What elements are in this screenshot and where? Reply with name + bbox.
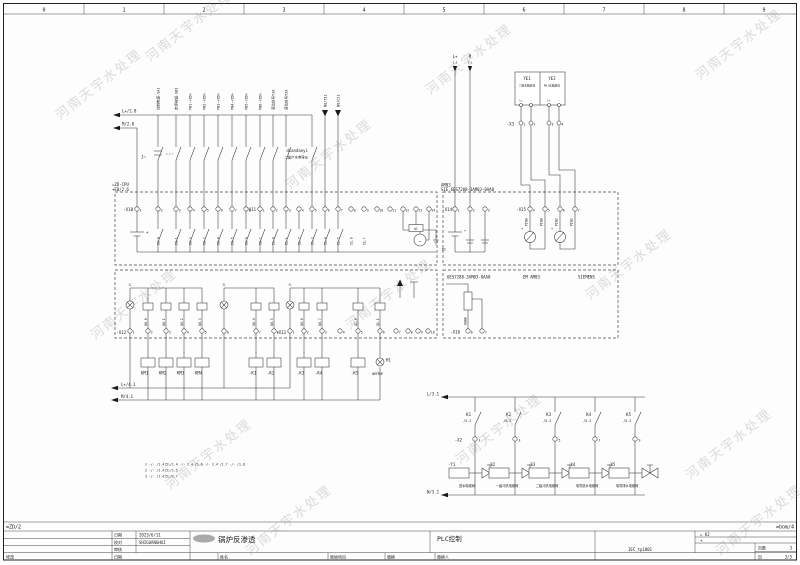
ruler-number-4: 4 xyxy=(362,8,365,14)
coil-rect-2 xyxy=(179,303,189,310)
coil-rect-7 xyxy=(317,303,327,310)
x13-num-7: 8 xyxy=(411,330,413,334)
aq-wire-0: AQW0 xyxy=(464,317,468,325)
piw-wire-3: PIW2 xyxy=(570,218,574,226)
k-contact-label: K3 xyxy=(546,412,551,417)
x13-num-5: 6 xyxy=(383,330,385,334)
terminal-1 xyxy=(480,329,484,333)
terminal-5 xyxy=(222,329,226,333)
x14-num-0: 1 xyxy=(458,208,460,212)
audit-label: 审核 xyxy=(114,546,122,552)
x13-num-4: 5 xyxy=(361,330,363,334)
x10-wire-labels: I0.0I0.1I0.2I0.3I0.4I0.5I0.6 xyxy=(157,237,249,245)
ye-term-0: L+ xyxy=(519,99,523,103)
x16-terminals xyxy=(466,329,484,333)
terminal-2 xyxy=(164,329,168,333)
terminal-0 xyxy=(288,329,292,333)
x11-num-4: 5 xyxy=(315,208,317,212)
watermark-11: 河南天宇水处理 xyxy=(713,482,800,559)
terminal-0 xyxy=(528,207,532,211)
x14-num-2: 3 xyxy=(488,208,490,212)
x11-num-10: 11 xyxy=(392,208,396,212)
ac-label: AC xyxy=(414,227,418,231)
x2-num: 9 xyxy=(639,439,641,443)
x10-num-6: 7 xyxy=(235,208,237,212)
terminal-3 xyxy=(573,207,577,211)
x12-wire-1: Q0.0 xyxy=(144,318,148,326)
x10-num-3: 4 xyxy=(193,208,195,212)
group-label-1: 2L xyxy=(222,283,226,287)
x10-num-4: 5 xyxy=(207,208,209,212)
x13-wire-5: Q1.1 xyxy=(376,318,380,326)
input-labels: 控制电源-SA1启停按钮-SB1PB1-<ZD>PB2-<ZD>PB3-<ZD>… xyxy=(156,88,289,110)
input-label-3: PB2-<ZD> xyxy=(203,93,207,110)
terminal-3 xyxy=(188,207,192,211)
aq-wire-label: AQW0 xyxy=(464,317,468,325)
date-value: 2023/6/11 xyxy=(139,533,161,538)
x10-num-7: 8 xyxy=(249,208,251,212)
valve-branch-5: K5 /5.3 9 -Y5 电导排水电磁阀 xyxy=(608,397,658,495)
drawing-subtitle: PLC控制 xyxy=(437,534,462,543)
x11-num-1: 2 xyxy=(276,208,278,212)
x13-numbers: 12345678910 xyxy=(293,330,435,334)
x13-num-8: 9 xyxy=(421,330,423,334)
coil-rect-3 xyxy=(197,303,207,310)
h1-label: H1 xyxy=(386,358,391,363)
valve-bus-l: L/3.1 xyxy=(427,392,440,397)
valve-desc: 二级冲洗电磁阀 xyxy=(536,483,558,488)
conductivity-note: diandaoyi 二级产水电导仪 xyxy=(284,148,308,160)
input-label-0: 控制电源-SA1 xyxy=(156,88,161,110)
coil-rects xyxy=(141,358,365,367)
ref-left: =ZD/2 xyxy=(6,525,21,531)
date-label: 日期 xyxy=(114,532,122,538)
schematic-page: 0123456789 河南天宇水处理河南天宇水处理河南天宇水处理河南天宇水处理河… xyxy=(0,0,800,565)
valve-branch-3: K3 /5.3 5 -Y3 二级冲洗电磁阀 xyxy=(528,397,578,495)
sensor-l-ref: 3.1 xyxy=(452,61,457,65)
coil-label-8: -K5 xyxy=(351,371,359,376)
k-contact-ref: /5.3 xyxy=(543,419,551,423)
key-switch-label: J~ xyxy=(141,155,146,160)
x12-wire-2: Q0.1 xyxy=(162,318,166,326)
x13-terminals xyxy=(288,329,430,333)
piw-wire-1: PIW0 xyxy=(540,218,544,226)
valve-tag: -Y1 xyxy=(448,462,456,467)
legend-line-2: 3 -/- /1.4(5)/1.7 xyxy=(145,475,178,479)
coil-rect-4 xyxy=(251,303,261,310)
coil-label-5: -K2 xyxy=(267,371,275,376)
valve-branch-4: K4 /5.3 7 -Y4 电导进水电磁阀 xyxy=(568,397,618,495)
terminal-1 xyxy=(529,121,533,125)
check-label: 校对 xyxy=(114,539,122,545)
valve-tag: -Y2 xyxy=(488,462,496,467)
x11-num-12: 13 xyxy=(418,208,422,212)
x10-num-5: 6 xyxy=(221,208,223,212)
note-diandaoyi-cn: 二级产水电导仪 xyxy=(284,155,308,160)
mid-feed-buses: L+/4.1 M/4.1 xyxy=(111,382,380,402)
x12-num-5: 6 xyxy=(227,330,229,334)
x12-num-6: 7 xyxy=(259,330,261,334)
coil-rect-8 xyxy=(353,303,363,310)
coil-label-0: KM1 xyxy=(141,371,149,376)
terminal-1 xyxy=(302,329,306,333)
input-label-7: PB6-<ZD> xyxy=(259,93,263,110)
mid-bus-l-label: L+/4.1 xyxy=(121,382,136,387)
terminal-7 xyxy=(406,329,410,333)
k-contact-label: K4 xyxy=(586,412,591,417)
cpu-input-module: =ZD-CPU +EB/2.6 -X10 -X11 xyxy=(112,182,437,265)
mid-bus-m-label: M/4.1 xyxy=(121,394,134,399)
rev-label: 修改 xyxy=(6,553,14,559)
signal-arrow-labels: NO/T11NO/C21 xyxy=(324,94,341,107)
terminal-2 xyxy=(548,104,551,107)
terminal-2 xyxy=(284,207,288,211)
x12-wire-4: Q0.3 xyxy=(198,318,202,326)
x13-num-3: 4 xyxy=(343,330,345,334)
x12-wire-7: Q0.5 xyxy=(270,318,274,326)
ruler-number-0: 0 xyxy=(42,8,45,14)
x13-wire-4: Q1.0 xyxy=(354,318,358,326)
x2-num: 7 xyxy=(599,439,601,443)
terminal-2 xyxy=(174,207,178,211)
input-contacts xyxy=(158,115,317,207)
terminal-2 xyxy=(320,329,324,333)
output-relay-rects xyxy=(143,303,385,310)
h1-desc: 运行指示 xyxy=(372,372,383,376)
input-label-5: PB4-<ZD> xyxy=(231,93,235,110)
terminal-4 xyxy=(356,329,360,333)
coil-rect-0 xyxy=(143,303,153,310)
terminal-5 xyxy=(216,207,220,211)
x11-num-3: 4 xyxy=(302,208,304,212)
drawing-title: 锅炉反渗透 xyxy=(218,534,256,544)
am03-dc: DC xyxy=(442,248,446,252)
ye1-desc: 二级水箱液位 xyxy=(519,84,536,88)
coil-rect-9 xyxy=(375,303,385,310)
group-label-0: 1L xyxy=(128,283,132,287)
check-value: SHIGUANGHUI xyxy=(139,540,166,545)
x3-num-3: 4 xyxy=(562,122,564,126)
repl-label: 替换 xyxy=(387,553,395,559)
terminal-4 xyxy=(310,207,314,211)
terminal-8 xyxy=(362,207,366,211)
x16-numbers: 67 xyxy=(471,330,487,334)
coil-label-1: KM2 xyxy=(159,371,167,376)
em-brand: SIEMENS xyxy=(578,275,595,280)
x12-wire-6: Q0.4 xyxy=(252,318,256,326)
ruler-ticks xyxy=(84,4,724,14)
x12-wire-labels: Q0.0Q0.1Q0.2Q0.3Q0.4Q0.5 xyxy=(144,318,274,326)
key-switch-symbol xyxy=(154,151,173,155)
coil-rect-0 xyxy=(141,358,155,367)
x15-label: -X15 xyxy=(516,207,526,212)
ye-term-2: L+ xyxy=(547,99,551,103)
title-block: =ZD/2 =bom/4 日期 2023/6/11 校对 SHIGUANGHUI… xyxy=(4,525,796,561)
x11-num-13: 14 xyxy=(431,208,435,212)
coil-rect-6 xyxy=(299,303,309,310)
coil-rect-3 xyxy=(195,358,209,367)
arrow-label-1: NO/C21 xyxy=(337,94,341,107)
x14-label: -X14 xyxy=(442,207,452,212)
coil-rect-4 xyxy=(249,358,263,367)
valve-tag: -Y4 xyxy=(568,462,576,467)
bus-label-lplus: L+/2.8 xyxy=(122,109,137,114)
terminal-1 xyxy=(146,329,150,333)
coil-rect-5 xyxy=(269,303,279,310)
x15-num-2: 6 xyxy=(563,208,565,212)
terminal-6 xyxy=(230,207,234,211)
terminal-2 xyxy=(558,207,562,211)
x13-num-2: 3 xyxy=(325,330,327,334)
valve-bus-n: N/3.1 xyxy=(427,490,440,495)
k-contact-label: K1 xyxy=(466,412,471,417)
x12-wire-3: Q0.2 xyxy=(180,318,184,326)
ruler-number-5: 5 xyxy=(442,8,445,14)
x10-terminals xyxy=(135,207,248,211)
x2-num: 1 xyxy=(479,439,481,443)
x16-num-1: 7 xyxy=(485,330,487,334)
x15-terminals xyxy=(528,207,577,211)
piw-wire-0: PIW0 xyxy=(525,218,529,226)
ye2-label: YE2 xyxy=(548,76,556,81)
x16-label: -X16 xyxy=(450,330,460,335)
coil-label-7: -K4 xyxy=(315,371,323,376)
am03-plus: + xyxy=(464,229,466,233)
em-order: 6ES7288-3AM03-0AA0 xyxy=(447,275,491,280)
x10-num-0: 1 xyxy=(140,208,142,212)
x13-num-6: 7 xyxy=(399,330,401,334)
input-label-1: 启停按钮-SB1 xyxy=(174,88,179,110)
k-contact-ref: /5.2 xyxy=(463,419,471,423)
revdate-label: 日期 xyxy=(114,553,122,559)
terminal-1 xyxy=(271,207,275,211)
terminal-2 xyxy=(547,121,551,125)
terminal-5 xyxy=(378,329,382,333)
h1-lamp xyxy=(376,358,384,366)
terminal-0 xyxy=(135,207,139,211)
terminal-0 xyxy=(258,207,262,211)
x2-label: -X2 xyxy=(455,438,463,443)
valve-desc: 一级冲洗电磁阀 xyxy=(496,483,518,488)
valve-tag: -Y3 xyxy=(528,462,536,467)
x10-num-2: 3 xyxy=(179,208,181,212)
x3-num-1: 2 xyxy=(534,122,536,126)
x3-num-2: 3 xyxy=(552,122,554,126)
ruler-number-3: 3 xyxy=(282,8,285,14)
group-label-2: 3L xyxy=(288,283,292,287)
x15-num-1: 5 xyxy=(548,208,550,212)
orig-label: 原始项目 xyxy=(330,553,346,559)
k-contact-ref: /5.3 xyxy=(623,419,631,423)
terminal-0 xyxy=(128,329,132,333)
ye-x3-wires xyxy=(521,107,559,122)
coil-label-4: -K1 xyxy=(249,371,257,376)
watermark-3: 河南天宇水处理 xyxy=(693,6,786,83)
x2-num: 5 xyxy=(559,439,561,443)
ref-right: =bom/4 xyxy=(776,525,794,531)
x13-num-0: 1 xyxy=(293,330,295,334)
pages-value: 3 xyxy=(790,546,793,551)
ruler-number-6: 6 xyxy=(522,8,525,14)
coil-label-3: KM4 xyxy=(195,371,203,376)
output-relay-drops1 xyxy=(148,288,380,303)
coil-rect-2 xyxy=(177,358,191,367)
watermark-7: 河南天宇水处理 xyxy=(163,416,256,493)
watermark-8: 河南天宇水处理 xyxy=(453,391,546,468)
terminal-3 xyxy=(338,329,342,333)
terminal-3 xyxy=(558,104,561,107)
location-2: + xyxy=(700,538,703,543)
x2-num: 3 xyxy=(519,439,521,443)
ye2-desc: RO1水箱液位 xyxy=(544,84,560,88)
coil-drops-top xyxy=(148,333,380,358)
terminal-1 xyxy=(543,207,547,211)
ruler-number-7: 7 xyxy=(602,8,605,14)
x3-label: -X3 xyxy=(507,121,515,126)
x11-num-6: 7 xyxy=(341,208,343,212)
x13-wire-1: Q0.6 xyxy=(300,318,304,326)
ruler-number-8: 8 xyxy=(682,8,685,14)
x12-num-0: 1 xyxy=(133,330,135,334)
terminal-1 xyxy=(156,207,160,211)
x12-num-3: 4 xyxy=(187,330,189,334)
coil-rect-6 xyxy=(297,358,311,367)
terminal-6 xyxy=(394,329,398,333)
coil-labels: KM1KM2KM3KM4-K1-K2-K3-K4-K5 xyxy=(141,371,359,376)
x11-wire-8: I1.7 xyxy=(363,237,367,245)
x11-num-7: 8 xyxy=(354,208,356,212)
watermark-9: 河南天宇水处理 xyxy=(683,406,776,483)
valve-tag: -Y5 xyxy=(608,462,616,467)
am03-order: SIE.6ES7288-3AM03-0AA0 xyxy=(441,187,495,192)
am03-internal xyxy=(448,211,575,252)
cpu-internal-contacts xyxy=(158,211,343,252)
name-label: 姓名 xyxy=(220,553,228,559)
x11-num-8: 9 xyxy=(367,208,369,212)
terminal-1 xyxy=(530,104,533,107)
ruler-number-9: 9 xyxy=(762,8,765,14)
k-contact-label: K2 xyxy=(506,412,511,417)
ruler-number-1: 1 xyxy=(122,8,125,14)
terminal-9 xyxy=(426,329,430,333)
x10-label: -X10 xyxy=(123,207,133,212)
coil-rect-8 xyxy=(351,358,365,367)
x11-num-5: 6 xyxy=(328,208,330,212)
legend-line-0: 1 -/- /1.4(5)/1.4 -/- 2.4 /1.6 -/- 2.4 /… xyxy=(145,463,245,467)
x12-num-7: 8 xyxy=(277,330,279,334)
terminal-8 xyxy=(416,329,420,333)
watermark-6: 河南天宇水处理 xyxy=(583,226,676,303)
coil-rect-1 xyxy=(161,303,171,310)
bus-label-m: M/2.8 xyxy=(122,122,135,127)
terminal-2 xyxy=(483,207,487,211)
watermark-12: 河南天宇水处理 xyxy=(143,0,236,65)
location-1: = K2 xyxy=(700,532,710,537)
terminal-6 xyxy=(254,329,258,333)
terminal-1 xyxy=(468,207,472,211)
input-label-6: PB5-<ZD> xyxy=(245,93,249,110)
valve-desc: 电导进水电磁阀 xyxy=(576,483,598,488)
em-name: EM AM03 xyxy=(523,275,540,280)
piw-wire-labels: PIW0PIW0PIW2PIW2 xyxy=(525,218,574,226)
coil-rect-7 xyxy=(315,358,329,367)
note-diandaoyi: diandaoyi xyxy=(286,148,308,153)
x12-num-4: 5 xyxy=(205,330,207,334)
k-contact-ref: /5.2 xyxy=(503,419,511,423)
valve-desc: 电导排水电磁阀 xyxy=(616,483,638,488)
sensor-m-ref: 3.1 xyxy=(467,61,472,65)
doc-number: IEC_tp1001 xyxy=(628,547,653,552)
x15-num-0: 4 xyxy=(533,208,535,212)
replby-label: 替换人 xyxy=(437,553,449,559)
transducer1-plus: + xyxy=(521,227,523,231)
am03-module: AM03 SIE.6ES7288-3AM03-0AA0 -X14 -X15 xyxy=(441,183,618,266)
pages-label: 页数 xyxy=(758,545,766,551)
x3-num-0: 1 xyxy=(524,122,526,126)
company-logo xyxy=(193,535,215,543)
legend-line-1: 2 -/- /1.4(5)/1.5 xyxy=(145,469,178,473)
arrow-label-0: NO/T11 xyxy=(324,94,328,107)
coil-label-2: KM3 xyxy=(177,371,185,376)
watermark-10: 河南天宇水处理 xyxy=(243,482,336,559)
terminal-3 xyxy=(297,207,301,211)
x11-wire-7: I1.6 xyxy=(350,237,354,245)
x16-num-0: 6 xyxy=(471,330,473,334)
terminal-0 xyxy=(519,121,523,125)
terminal-5 xyxy=(323,207,327,211)
x12-label: -X12 xyxy=(116,330,126,335)
input-label-4: PB3-<ZD> xyxy=(217,93,221,110)
em-am03-module: 6ES7288-3AM03-0AA0 EM AM03 SIEMENS -X16 xyxy=(443,270,618,338)
page-label: 页 xyxy=(758,554,762,559)
cpu-tag2: +EB/2.6 xyxy=(112,187,129,192)
terminal-0 xyxy=(520,104,523,107)
terminal-0 xyxy=(466,329,470,333)
terminal-7 xyxy=(244,207,248,211)
terminal-7 xyxy=(349,207,353,211)
input-label-2: PB1-<ZD> xyxy=(189,93,193,110)
coil-label-6: -K3 xyxy=(297,371,305,376)
x11-num-0: 1 xyxy=(263,208,265,212)
valve-desc: 进水电磁阀 xyxy=(459,483,475,488)
x11-num-9: 10 xyxy=(379,208,383,212)
k-contact-label: K5 xyxy=(626,412,631,417)
piw-wire-2: PIW2 xyxy=(555,218,559,226)
ye1-label: YE1 xyxy=(523,76,531,81)
coil-rect-5 xyxy=(267,358,281,367)
sensor-lplus: L+ xyxy=(453,54,458,59)
x13-wire-2: Q0.7 xyxy=(318,318,322,326)
terminal-3 xyxy=(557,121,561,125)
transducer2-plus: + xyxy=(551,227,553,231)
terminal-4 xyxy=(200,329,204,333)
x13-num-1: 2 xyxy=(307,330,309,334)
x13-num-9: 10 xyxy=(431,330,435,334)
x15-num-3: 7 xyxy=(578,208,580,212)
x12-num-2: 3 xyxy=(169,330,171,334)
k-contact-ref: /5.3 xyxy=(583,419,591,423)
level-sensors: L+ M 3.1 3.1 YE1 YE2 二级水箱液位 RO1水箱液位 -X3 xyxy=(452,54,575,207)
cpu-battery-plus: + xyxy=(146,230,149,235)
input-label-9: 液位信号T2A xyxy=(284,89,289,110)
terminal-7 xyxy=(272,329,276,333)
x14-num-1: 2 xyxy=(473,208,475,212)
terminal-3 xyxy=(182,329,186,333)
terminal-6 xyxy=(336,207,340,211)
coil-rect-1 xyxy=(159,358,173,367)
page-value: 3/5 xyxy=(785,554,793,559)
input-label-8: 液位信号T1A xyxy=(271,89,276,110)
